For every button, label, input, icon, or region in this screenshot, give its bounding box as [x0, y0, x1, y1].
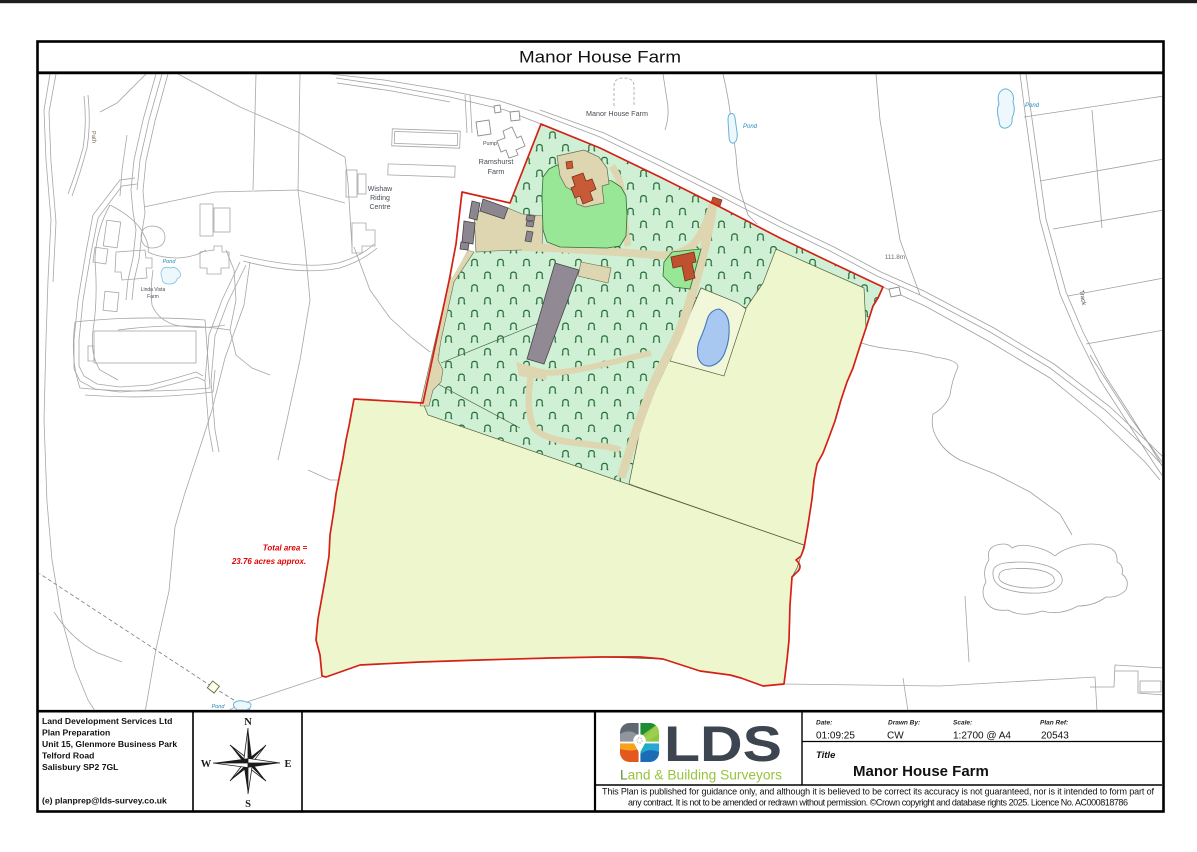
- svg-text:Linda Vista: Linda Vista: [141, 287, 166, 293]
- svg-text:20543: 20543: [1041, 731, 1069, 742]
- svg-text:Pump: Pump: [483, 141, 497, 147]
- svg-text:LDS: LDS: [664, 716, 782, 772]
- svg-text:W: W: [201, 759, 212, 770]
- svg-text:Riding: Riding: [370, 195, 390, 202]
- svg-text:Salisbury SP2 7GL: Salisbury SP2 7GL: [42, 762, 118, 772]
- svg-text:This Plan is published for gui: This Plan is published for guidance only…: [602, 787, 1154, 797]
- svg-text:Title: Title: [816, 750, 836, 761]
- svg-text:CW: CW: [887, 731, 904, 742]
- svg-text:Telford Road: Telford Road: [42, 751, 94, 761]
- svg-text:Manor House Farm: Manor House Farm: [519, 49, 681, 67]
- svg-text:Centre: Centre: [369, 204, 390, 211]
- svg-text:1:2700 @ A4: 1:2700 @ A4: [953, 731, 1011, 742]
- svg-text:Ramshurst: Ramshurst: [479, 157, 514, 166]
- svg-text:Pond: Pond: [212, 704, 226, 710]
- svg-text:Pond: Pond: [163, 259, 177, 265]
- svg-text:Land & Building Surveyors: Land & Building Surveyors: [620, 768, 782, 783]
- svg-text:Wishaw: Wishaw: [368, 186, 393, 193]
- svg-text:111.8m: 111.8m: [885, 254, 905, 261]
- svg-text:Plan Ref:: Plan Ref:: [1040, 720, 1068, 727]
- svg-text:Manor House Farm: Manor House Farm: [853, 763, 989, 780]
- svg-text:E: E: [284, 759, 291, 770]
- svg-text:Date:: Date:: [816, 720, 832, 727]
- svg-text:Farm: Farm: [488, 167, 505, 176]
- svg-text:Farm: Farm: [147, 294, 159, 300]
- svg-text:S: S: [245, 799, 251, 810]
- svg-text:Manor House Farm: Manor House Farm: [586, 109, 648, 118]
- svg-text:Total area =: Total area =: [263, 544, 308, 553]
- svg-text:23.76 acres approx.: 23.76 acres approx.: [231, 557, 306, 566]
- svg-text:Scale:: Scale:: [953, 720, 972, 727]
- svg-text:01:09:25: 01:09:25: [816, 731, 855, 742]
- svg-text:Drawn By:: Drawn By:: [888, 720, 920, 727]
- svg-text:Land Development Services Ltd: Land Development Services Ltd: [42, 716, 172, 726]
- svg-text:N: N: [244, 717, 252, 728]
- svg-text:Pond: Pond: [743, 124, 758, 130]
- svg-text:Unit 15, Glenmore Business Par: Unit 15, Glenmore Business Park: [42, 739, 177, 749]
- svg-text:(e) planprep@lds-survey.co.uk: (e) planprep@lds-survey.co.uk: [42, 796, 167, 806]
- svg-text:Pond: Pond: [1025, 103, 1040, 109]
- svg-text:any contract. It is not to be: any contract. It is not to be amended or…: [628, 798, 1128, 808]
- svg-text:Plan Preparation: Plan Preparation: [42, 728, 110, 738]
- svg-text:Path: Path: [90, 131, 97, 144]
